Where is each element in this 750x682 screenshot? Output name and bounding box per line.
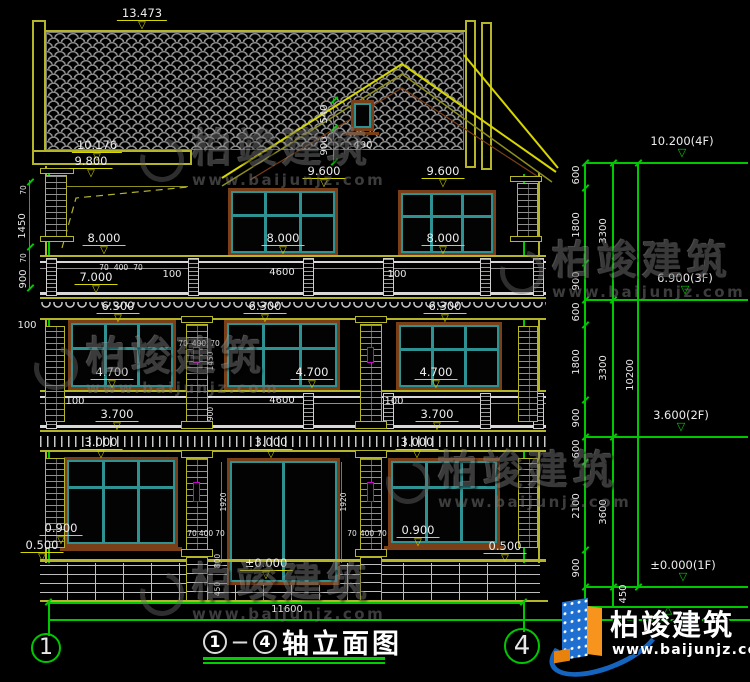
dim-label: 400 <box>199 529 213 539</box>
pillar-vent <box>367 482 374 502</box>
pillar-cap <box>355 450 387 458</box>
dim-label: 4600 <box>269 396 294 406</box>
dim-label: 400 <box>360 529 374 539</box>
title-underline-thin <box>203 662 385 664</box>
elevation-label: 4.700▽ <box>415 366 458 389</box>
logo-url-text: www.baijunjz.com <box>612 642 750 658</box>
dim-label-vertical: 900 <box>572 271 582 290</box>
dim-label: 4600 <box>269 268 294 278</box>
pillar-cap <box>355 316 387 323</box>
plinth-top-line <box>40 559 546 562</box>
dim-label-vertical: 3300 <box>599 218 609 243</box>
railing-post <box>480 393 491 429</box>
elevation-label: 8.000▽ <box>422 232 465 255</box>
dim-label: 70 <box>347 529 357 539</box>
level-label: ±0.000(1F)▽ <box>650 559 715 582</box>
railing-post <box>303 258 314 296</box>
pillar-2f-outer-right <box>518 326 538 422</box>
level-label: 6.900(3F)▽ <box>657 272 713 295</box>
dim-label: 70 <box>210 339 220 349</box>
drawing-title: 1 — 4 轴立面图 <box>203 622 402 661</box>
dim-label-vertical: 450 <box>213 582 223 596</box>
dim-label-vertical: 1920 <box>339 492 349 511</box>
dim-label: 100 <box>387 270 406 280</box>
pillar-cap <box>181 549 213 557</box>
pillar-cap <box>355 549 387 557</box>
title-axis-circle-1: 1 <box>203 630 227 654</box>
dim-label-vertical: 600 <box>572 165 582 184</box>
logo-building-tower-icon <box>587 606 602 656</box>
dim-label-vertical: 70 <box>19 253 29 263</box>
dim-label-vertical: 900 <box>320 136 330 155</box>
railing-post <box>533 258 544 296</box>
pillar-cap <box>510 236 542 242</box>
dim-label-vertical: 1920 <box>219 492 229 511</box>
elevation-label: 3.700▽ <box>96 408 139 431</box>
dim-label-vertical: 3300 <box>599 355 609 380</box>
dim-label: 70 <box>215 529 225 539</box>
pillar-cap <box>181 316 213 323</box>
window-sill-1f-left <box>60 547 182 551</box>
elevation-label: ±0.000▽ <box>240 557 293 580</box>
dim-label-vertical: 900 <box>572 408 582 427</box>
dim-label-vertical: 1450 <box>206 351 216 370</box>
elevation-label: 3.700▽ <box>416 408 459 431</box>
dim-label: 100 <box>65 397 84 407</box>
elevation-label: 3.000▽ <box>396 436 439 459</box>
pillar-1f-outer-right <box>518 458 538 548</box>
dim-label-vertical: 900 <box>19 269 29 288</box>
pillar-3f-outer-left <box>45 175 67 237</box>
elevation-label: 9.800▽ <box>70 155 113 178</box>
pillar-vent <box>193 482 200 502</box>
elevation-label: 0.500▽ <box>21 539 64 562</box>
dim-label: 70 <box>187 529 197 539</box>
pillar-cap <box>510 176 542 182</box>
logo-brand-text: 柏竣建筑 <box>610 602 734 644</box>
elevation-drawing-canvas: 1 — 4 轴立面图 1 4 柏竣建筑 www.baijunjz.com 13.… <box>0 0 750 682</box>
dim-label-vertical: 600 <box>572 439 582 458</box>
pillar-cap <box>355 421 387 429</box>
dim-label-vertical: 540 <box>320 104 330 123</box>
dim-label-vertical: 800 <box>213 554 223 568</box>
pillar-cap <box>181 421 213 429</box>
elevation-label: 6.300▽ <box>244 300 287 323</box>
pillar-3f-outer-right <box>517 183 538 237</box>
dim-label-vertical: 900 <box>572 558 582 577</box>
dim-label: 70 <box>377 529 387 539</box>
elevation-label: 3.000▽ <box>250 436 293 459</box>
dim-label-vertical: 600 <box>572 302 582 321</box>
elevation-label: 13.473▽ <box>117 7 167 30</box>
elevation-label: 7.000▽ <box>75 271 118 294</box>
level-line <box>585 586 748 588</box>
elevation-label: 9.600▽ <box>303 165 346 188</box>
railing-post <box>303 393 314 429</box>
ground-line <box>40 600 548 602</box>
dim-label-vertical: 900 <box>206 407 216 421</box>
railing-post <box>46 258 57 296</box>
dim-label-vertical: 3600 <box>599 499 609 524</box>
dim-label: 100 <box>162 270 181 280</box>
dim-label-vertical: 1800 <box>572 349 582 374</box>
dim-label: 70 <box>178 339 188 349</box>
level-line <box>585 299 748 301</box>
attic-window <box>351 100 374 131</box>
elevation-label: 4.700▽ <box>291 366 334 389</box>
title-underline-thick <box>203 657 385 660</box>
elevation-label: 9.600▽ <box>422 165 465 188</box>
elevation-label: 6.300▽ <box>424 300 467 323</box>
brand-logo: 柏竣建筑 www.baijunjz.com <box>538 594 750 682</box>
dim-label: 400 <box>114 263 128 273</box>
dim-label-vertical: 1800 <box>572 212 582 237</box>
pillar-vent <box>193 347 200 363</box>
dim-label-vertical: 70 <box>19 185 29 195</box>
title-text: 轴立面图 <box>282 622 402 661</box>
dim-label: 400 <box>192 339 206 349</box>
pillar-2f-right <box>360 324 382 422</box>
dim-label-vertical: 2100 <box>572 493 582 518</box>
title-dash: — <box>232 632 248 651</box>
axis-bubble-4: 4 <box>504 628 540 664</box>
dim-label: 11600 <box>271 605 303 615</box>
pillar-cap <box>181 450 213 458</box>
dim-label: 70 <box>99 263 109 273</box>
level-label: 10.200(4F)▽ <box>650 135 713 158</box>
railing-post <box>480 258 491 296</box>
pillar-pier-right <box>360 557 382 601</box>
pillar-vent <box>367 347 374 363</box>
pillar-cap <box>40 236 74 242</box>
dim-label: 70 <box>133 263 143 273</box>
pillar-pier-left <box>186 557 208 601</box>
pillar-2f-outer-left <box>45 326 65 422</box>
elevation-label: 0.900▽ <box>397 524 440 547</box>
railing-post <box>188 258 199 296</box>
axis-bubble-1: 1 <box>31 633 61 663</box>
elevation-label: 8.000▽ <box>262 232 305 255</box>
elevation-label: 0.500▽ <box>484 540 527 563</box>
dim-label-vertical: 1450 <box>18 213 28 238</box>
dim-label: 100 <box>17 321 36 331</box>
title-axis-circle-4: 4 <box>253 630 277 654</box>
level-line <box>585 436 748 438</box>
level-label: 3.600(2F)▽ <box>653 409 709 432</box>
level-line <box>585 162 748 164</box>
elevation-label: 3.000▽ <box>80 436 123 459</box>
elevation-label: 8.000▽ <box>83 232 126 255</box>
dim-label: 490 <box>353 141 372 151</box>
elevation-label: 4.700▽ <box>91 366 134 389</box>
dim-label: 100 <box>384 397 403 407</box>
elevation-label: 6.300▽ <box>97 300 140 323</box>
dim-label-vertical: 10200 <box>626 359 636 391</box>
